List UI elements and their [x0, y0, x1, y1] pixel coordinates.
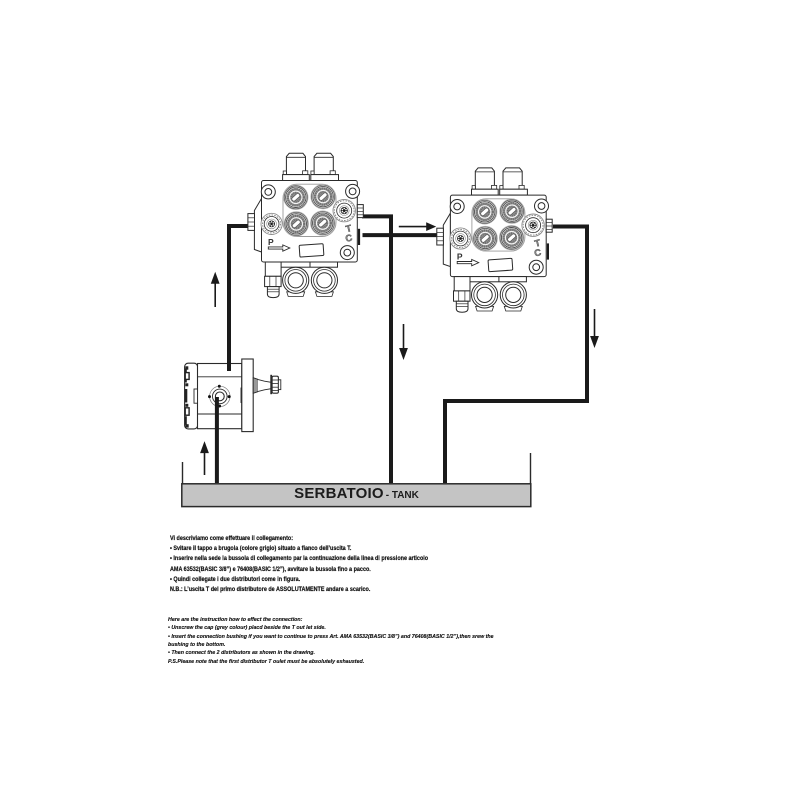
- svg-text:P: P: [457, 252, 463, 262]
- svg-text:P: P: [268, 237, 274, 247]
